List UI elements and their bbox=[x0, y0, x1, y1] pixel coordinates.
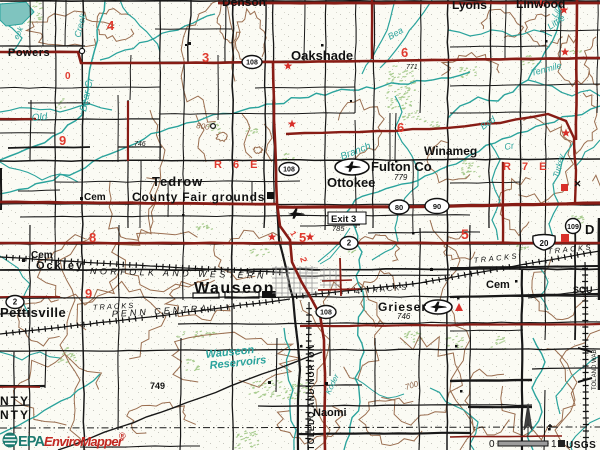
svg-text:Denson: Denson bbox=[222, 0, 266, 9]
svg-text:5: 5 bbox=[299, 230, 306, 245]
svg-text:TOLEDO AND NORTON: TOLEDO AND NORTON bbox=[307, 344, 316, 450]
svg-text:NTY: NTY bbox=[0, 394, 30, 408]
svg-text:NTY: NTY bbox=[0, 408, 30, 422]
svg-text:746: 746 bbox=[397, 312, 411, 321]
svg-text:2: 2 bbox=[347, 239, 352, 248]
svg-text:D: D bbox=[585, 222, 594, 237]
svg-text:1: 1 bbox=[551, 439, 557, 450]
svg-text:109: 109 bbox=[567, 224, 579, 231]
svg-text:108: 108 bbox=[283, 167, 295, 174]
svg-text:6: 6 bbox=[401, 45, 408, 60]
svg-text:R 6 E: R 6 E bbox=[214, 159, 262, 171]
svg-text:County Fair grounds: County Fair grounds bbox=[132, 190, 265, 204]
svg-text:EPA: EPA bbox=[18, 434, 45, 450]
svg-text:4: 4 bbox=[107, 18, 115, 33]
svg-text:0: 0 bbox=[65, 71, 71, 82]
svg-text:EnviroMapper: EnviroMapper bbox=[44, 434, 124, 449]
svg-text:8: 8 bbox=[89, 230, 96, 245]
svg-text:90: 90 bbox=[433, 202, 441, 211]
svg-text:80: 80 bbox=[395, 203, 403, 212]
svg-text:SOU: SOU bbox=[573, 285, 593, 295]
svg-text:108: 108 bbox=[246, 60, 258, 67]
svg-text:®: ® bbox=[119, 431, 126, 441]
svg-text:USGS: USGS bbox=[566, 440, 596, 450]
svg-text:Cem: Cem bbox=[486, 279, 510, 291]
svg-text:800: 800 bbox=[196, 121, 211, 132]
svg-text:Wauseon: Wauseon bbox=[194, 280, 275, 297]
svg-text:108: 108 bbox=[320, 310, 332, 317]
svg-text:9: 9 bbox=[59, 133, 66, 148]
svg-text:3: 3 bbox=[202, 50, 209, 65]
svg-text:Ockley: Ockley bbox=[36, 260, 84, 272]
svg-text:Pettisville: Pettisville bbox=[0, 305, 66, 320]
svg-text:9: 9 bbox=[85, 286, 92, 301]
svg-text:779: 779 bbox=[394, 173, 408, 182]
svg-text:Ottokee: Ottokee bbox=[327, 175, 375, 190]
svg-text:Lyons: Lyons bbox=[452, 0, 487, 12]
svg-text:5: 5 bbox=[461, 226, 469, 242]
svg-text:Naomi: Naomi bbox=[313, 407, 347, 419]
svg-text:Oakshade: Oakshade bbox=[291, 48, 353, 63]
svg-text:771: 771 bbox=[406, 64, 418, 71]
svg-text:785: 785 bbox=[332, 224, 345, 233]
svg-text:R 7 E: R 7 E bbox=[503, 161, 551, 173]
svg-text:746: 746 bbox=[134, 141, 146, 148]
svg-text:749: 749 bbox=[150, 381, 165, 391]
svg-text:Tedrow: Tedrow bbox=[152, 174, 203, 189]
svg-text:Old: Old bbox=[31, 112, 48, 124]
svg-text:Fulton Co: Fulton Co bbox=[371, 159, 432, 174]
svg-text:Powers: Powers bbox=[8, 47, 50, 59]
svg-text:0: 0 bbox=[489, 439, 495, 450]
svg-text:TOL AND WAB: TOL AND WAB bbox=[592, 350, 598, 390]
svg-text:Linwood: Linwood bbox=[516, 0, 565, 11]
svg-text:6: 6 bbox=[397, 120, 404, 135]
svg-text:Cem: Cem bbox=[84, 192, 106, 203]
svg-text:Winameg: Winameg bbox=[424, 144, 477, 158]
